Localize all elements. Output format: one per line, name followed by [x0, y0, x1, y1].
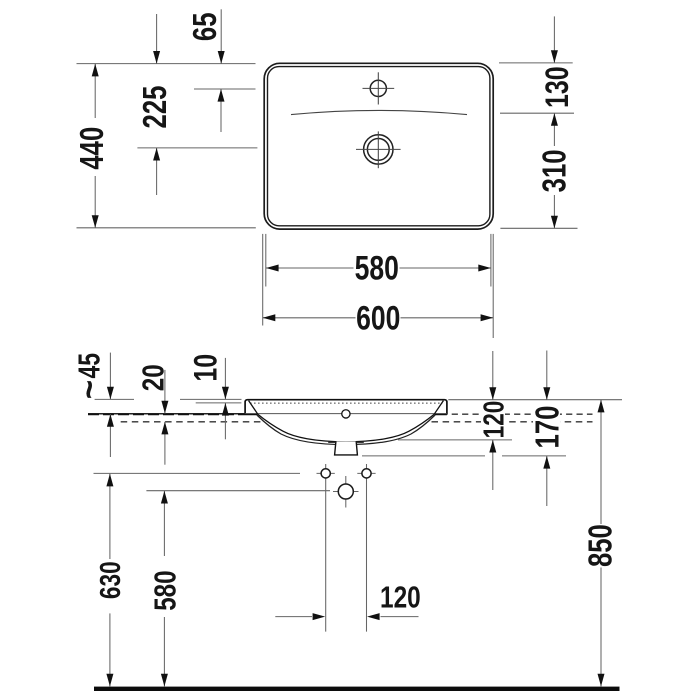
- svg-text:170: 170: [530, 406, 567, 449]
- svg-text:120: 120: [380, 580, 421, 614]
- svg-text:440: 440: [74, 127, 111, 170]
- svg-text:630: 630: [93, 561, 126, 599]
- svg-text:65: 65: [187, 12, 224, 41]
- svg-text:850: 850: [583, 524, 620, 567]
- svg-text:225: 225: [137, 86, 174, 129]
- svg-text:20: 20: [136, 364, 171, 391]
- svg-text:580: 580: [355, 249, 399, 287]
- svg-text:600: 600: [356, 299, 400, 337]
- svg-text:~: ~: [70, 380, 109, 399]
- svg-text:130: 130: [540, 66, 576, 108]
- svg-text:310: 310: [537, 149, 574, 192]
- svg-text:120: 120: [477, 401, 510, 439]
- svg-text:45: 45: [71, 353, 106, 378]
- svg-text:10: 10: [189, 354, 225, 382]
- svg-text:580: 580: [148, 570, 183, 610]
